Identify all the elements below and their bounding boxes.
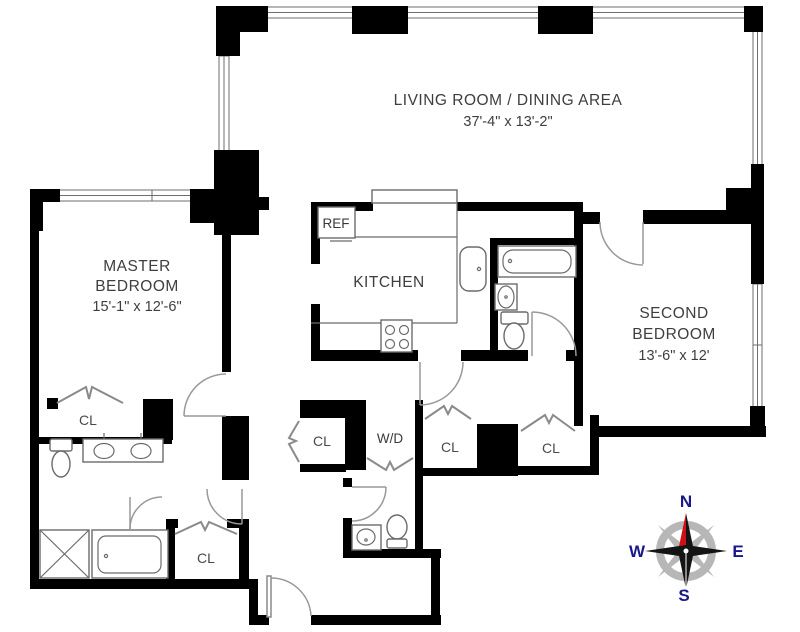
floor-plan-svg: LIVING ROOM / DINING AREA 37'-4" x 13'-2… bbox=[0, 0, 800, 632]
hall-closet-bifold bbox=[289, 421, 299, 462]
kitchen-pass-through-counter bbox=[372, 190, 457, 203]
wall-outer-bottom bbox=[30, 579, 253, 589]
compass-west-label: W bbox=[629, 542, 646, 561]
second-bedroom-dims: 13'-6" x 12' bbox=[638, 348, 709, 364]
compass-east-label: E bbox=[732, 542, 743, 561]
wall bbox=[300, 400, 345, 418]
hall-door-arc bbox=[207, 489, 242, 524]
living-room-dims: 37'-4" x 13'-2" bbox=[463, 114, 552, 130]
powder-toilet-tank bbox=[387, 539, 407, 548]
master-door-arc bbox=[184, 374, 226, 416]
compass-east-point bbox=[686, 545, 727, 557]
wall bbox=[518, 466, 599, 475]
wall-column bbox=[352, 6, 408, 34]
floor-plan: LIVING ROOM / DINING AREA 37'-4" x 13'-2… bbox=[0, 0, 800, 632]
kitchen-door-arc bbox=[420, 362, 463, 405]
wall bbox=[590, 415, 599, 470]
wall-corner bbox=[190, 189, 240, 223]
wall bbox=[300, 464, 346, 472]
wall-corner bbox=[744, 6, 763, 32]
bathroom2-toilet-bowl bbox=[504, 323, 524, 349]
wall bbox=[583, 212, 600, 224]
wall bbox=[423, 468, 478, 476]
living-room-label: LIVING ROOM / DINING AREA bbox=[394, 92, 623, 109]
wall bbox=[457, 202, 583, 211]
compass-center bbox=[684, 549, 689, 554]
wall bbox=[47, 398, 58, 409]
wall bbox=[431, 549, 440, 625]
closet-label-master: CL bbox=[79, 412, 97, 428]
wall-step bbox=[726, 188, 760, 212]
bathroom2-door-arc bbox=[532, 312, 576, 356]
wall-outer-left bbox=[30, 189, 39, 589]
wall bbox=[166, 519, 178, 528]
master-bedroom-label-line2: BEDROOM bbox=[95, 278, 179, 295]
wall-column bbox=[216, 6, 240, 56]
entry-door-leaf bbox=[267, 576, 271, 617]
compass-west-point bbox=[645, 545, 686, 557]
wall-block bbox=[143, 399, 173, 440]
bathroom2-toilet-tank bbox=[501, 312, 528, 324]
compass-rose: N E S W bbox=[629, 492, 744, 605]
wall bbox=[239, 519, 249, 582]
second-bedroom-door-arc bbox=[600, 222, 643, 265]
wall-block bbox=[345, 400, 366, 470]
wall bbox=[490, 238, 582, 245]
closet-label-3: CL bbox=[441, 439, 459, 455]
master-bath-door-arc bbox=[130, 497, 162, 529]
wall-column bbox=[538, 6, 593, 34]
kitchen-sink bbox=[460, 247, 486, 291]
closet3-bifold bbox=[425, 406, 471, 419]
wall-block bbox=[477, 424, 518, 476]
wall bbox=[343, 478, 352, 487]
compass-north-label: N bbox=[680, 492, 692, 511]
kitchen-label: KITCHEN bbox=[353, 274, 425, 291]
wall bbox=[598, 426, 766, 437]
second-bedroom-label-line1: SECOND bbox=[639, 305, 708, 322]
refrigerator-label: REF bbox=[323, 216, 350, 231]
compass-south-label: S bbox=[678, 586, 689, 605]
powder-toilet-bowl bbox=[387, 515, 407, 539]
wd-closet-bifold bbox=[367, 458, 413, 470]
wall bbox=[643, 210, 760, 224]
wall bbox=[222, 233, 231, 372]
wall-nub bbox=[259, 197, 269, 210]
wall bbox=[574, 202, 583, 426]
closet-label-hall: CL bbox=[313, 433, 331, 449]
master-bedroom-dims: 15'-1" x 12'-6" bbox=[92, 299, 181, 315]
wall bbox=[566, 350, 583, 361]
master-toilet-tank bbox=[50, 439, 72, 451]
wall bbox=[415, 400, 423, 550]
wall bbox=[343, 518, 352, 552]
wall-entry-bottom bbox=[311, 615, 441, 625]
washer-dryer-label: W/D bbox=[377, 431, 403, 446]
entry-door-arc bbox=[271, 578, 311, 616]
powder-door-arc bbox=[352, 487, 386, 521]
closet4-bifold bbox=[521, 415, 575, 431]
closet-label-4: CL bbox=[542, 440, 560, 456]
wall bbox=[249, 579, 258, 625]
wall bbox=[461, 350, 528, 361]
master-toilet-bowl bbox=[52, 451, 70, 477]
wall-block bbox=[222, 416, 249, 480]
master-bedroom-label-line1: MASTER bbox=[103, 258, 171, 275]
master-closet-bifold bbox=[57, 387, 123, 403]
second-bedroom-label-line2: BEDROOM bbox=[632, 326, 716, 343]
closet-label-bottom: CL bbox=[197, 550, 215, 566]
